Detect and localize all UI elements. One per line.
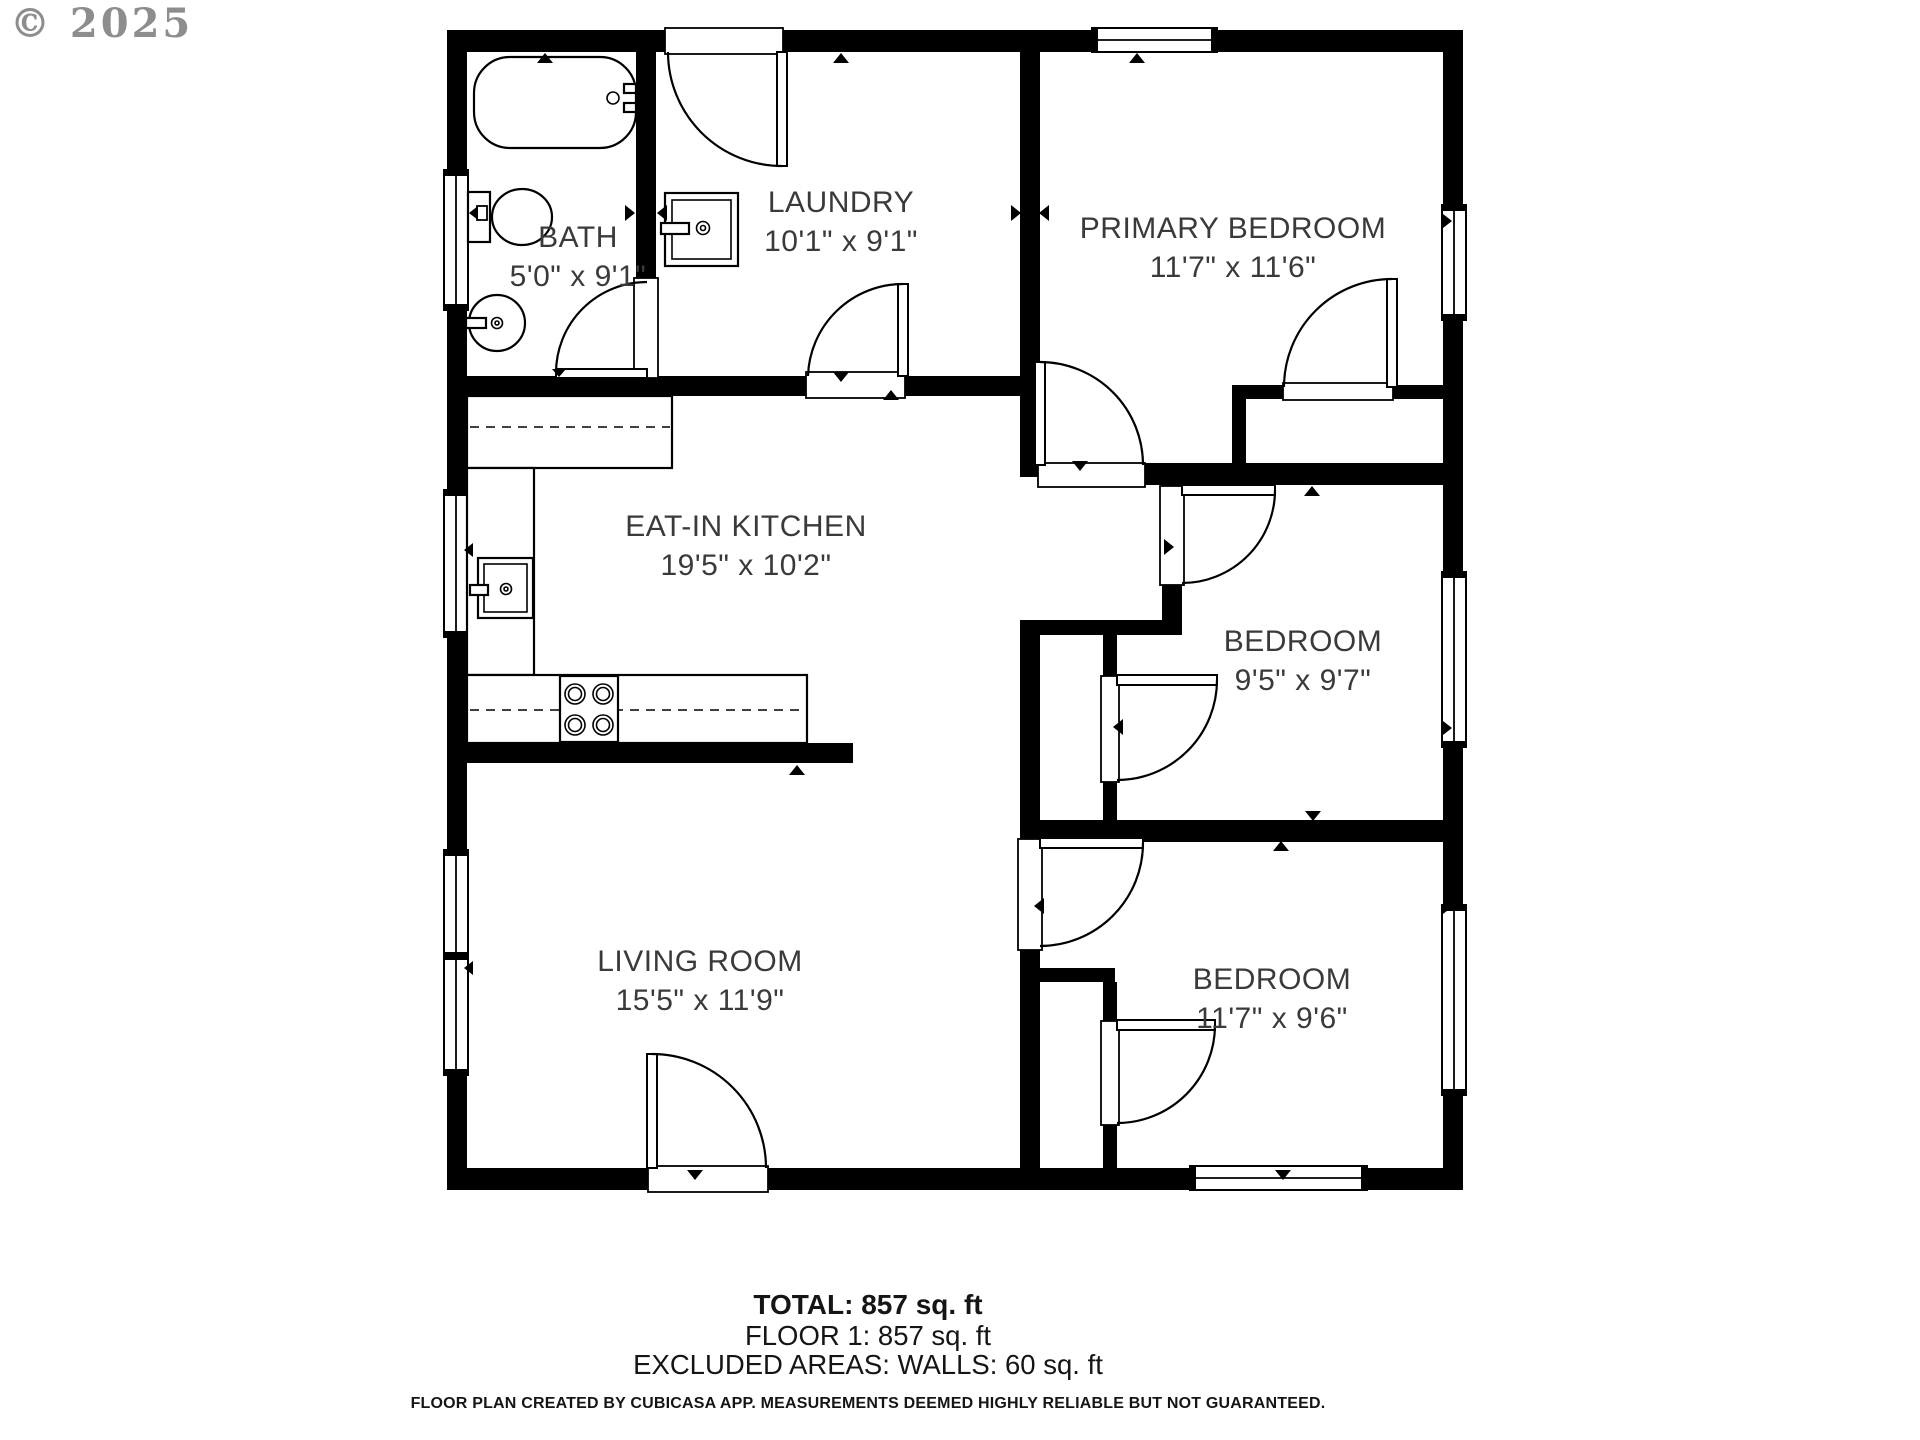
bathtub-icon (474, 57, 636, 148)
area-summary: TOTAL: 857 sq. ft FLOOR 1: 857 sq. ft EX… (411, 1289, 1326, 1413)
room-name: LAUNDRY (764, 183, 918, 222)
room-label-primary-bedroom: PRIMARY BEDROOM 11'7" x 11'6" (1080, 209, 1386, 287)
room-dimensions: 5'0" x 9'1" (510, 257, 647, 296)
room-dimensions: 15'5" x 11'9" (597, 981, 803, 1020)
total-area: TOTAL: 857 sq. ft (411, 1289, 1326, 1321)
room-name: BEDROOM (1224, 622, 1383, 661)
room-dimensions: 19'5" x 10'2" (625, 546, 866, 585)
disclaimer-text: FLOOR PLAN CREATED BY CUBICASA APP. MEAS… (411, 1395, 1326, 1413)
room-dimensions: 9'5" x 9'7" (1224, 661, 1383, 700)
room-name: LIVING ROOM (597, 942, 803, 981)
room-name: BEDROOM (1193, 960, 1352, 999)
room-dimensions: 11'7" x 9'6" (1193, 999, 1352, 1038)
room-name: BATH (510, 218, 647, 257)
excluded-area: EXCLUDED AREAS: WALLS: 60 sq. ft (411, 1350, 1326, 1379)
floorplan-canvas (0, 0, 1920, 1440)
room-label-bedroom-middle: BEDROOM 9'5" x 9'7" (1224, 622, 1383, 700)
room-label-kitchen: EAT-IN KITCHEN 19'5" x 10'2" (625, 507, 866, 585)
floor-area: FLOOR 1: 857 sq. ft (411, 1321, 1326, 1350)
stove-icon (560, 676, 618, 742)
bath-sink-icon (466, 295, 525, 351)
room-dimensions: 10'1" x 9'1" (764, 222, 918, 261)
room-name: PRIMARY BEDROOM (1080, 209, 1386, 248)
room-label-laundry: LAUNDRY 10'1" x 9'1" (764, 183, 918, 261)
floorplan-page: © 2025 (0, 0, 1920, 1440)
washer-icon (661, 193, 738, 266)
room-label-bath: BATH 5'0" x 9'1" (510, 218, 647, 296)
kitchen-sink-icon (470, 558, 533, 618)
toilet-paper-holder-icon (477, 206, 487, 220)
room-label-bedroom-bottom: BEDROOM 11'7" x 9'6" (1193, 960, 1352, 1038)
room-dimensions: 11'7" x 11'6" (1080, 248, 1386, 287)
room-name: EAT-IN KITCHEN (625, 507, 866, 546)
room-label-living-room: LIVING ROOM 15'5" x 11'9" (597, 942, 803, 1020)
